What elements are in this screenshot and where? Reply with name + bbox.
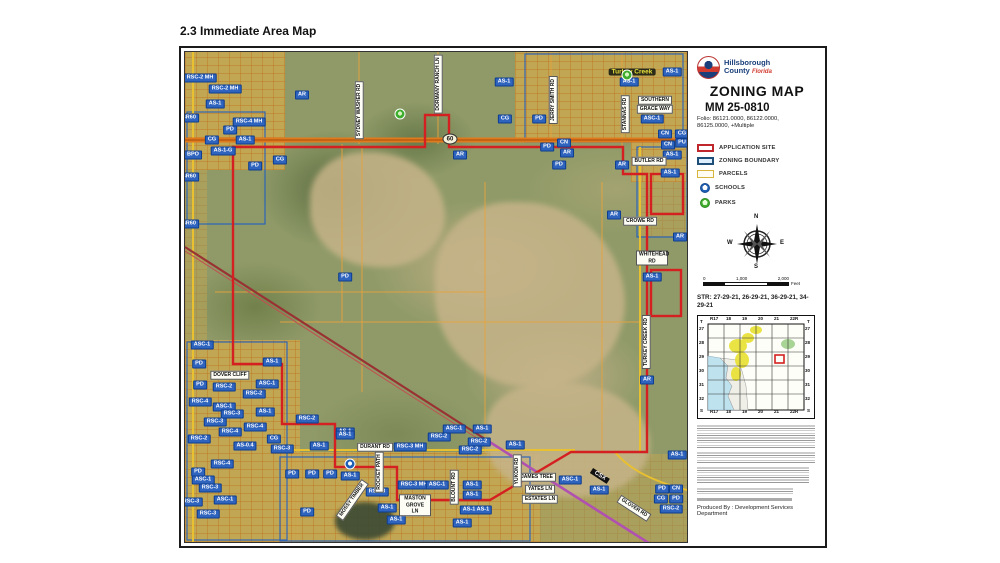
locator-row-label: 28	[699, 340, 704, 345]
zone-label: AS-1	[378, 504, 397, 513]
logo-org2: County	[724, 66, 750, 75]
case-number: MM 25-0810	[705, 102, 817, 114]
road-label-vertical: TURKEY CREEK RD	[642, 315, 651, 369]
legend-label: SCHOOLS	[715, 185, 745, 191]
locator-row-label: 30	[699, 368, 704, 373]
zone-label: RSC-3	[199, 484, 222, 493]
date-path-line	[697, 498, 792, 501]
compass-rose: N E S W	[729, 218, 785, 270]
produced-by: Produced By : Development Services Depar…	[697, 505, 815, 517]
zone-label: SR60	[184, 173, 199, 182]
scale-tick: 0	[703, 276, 706, 281]
map-title: ZONING MAP	[697, 83, 817, 99]
zone-label: RSC-2	[296, 415, 319, 424]
legend-item: PARKS	[697, 198, 817, 208]
zone-label: RSC-3	[204, 418, 227, 427]
locator-range-label: S	[700, 408, 703, 413]
scale-unit: Feet	[791, 281, 800, 286]
legend: APPLICATION SITEZONING BOUNDARYPARCELSSC…	[697, 144, 817, 208]
locator-col-label: 22R	[790, 409, 798, 414]
legend-item: SCHOOLS	[697, 183, 817, 193]
zone-label: PD	[540, 143, 554, 152]
zone-label: AS-1	[506, 441, 525, 450]
zone-label: AS-1	[668, 451, 687, 460]
logo-state: Florida	[752, 69, 772, 75]
county-logo-row: Hillsborough County Florida	[697, 56, 817, 79]
locator-row-label: 32	[805, 396, 810, 401]
school-icon	[700, 183, 710, 193]
zone-label: ASC-1	[426, 481, 449, 490]
road-label-vertical: ROCKET PATH	[375, 451, 384, 492]
road-label: CROWE RD	[623, 217, 657, 226]
locator-row-label: 29	[805, 354, 810, 359]
park-icon	[700, 198, 710, 208]
zone-label: RSC-2 MH	[184, 74, 216, 83]
zone-label: RSC-2	[660, 505, 683, 514]
locator-row-label: 28	[805, 340, 810, 345]
road-label-vertical: JERRY SMITH RD	[549, 76, 558, 124]
zone-label: ASC-1	[191, 341, 214, 350]
folio-numbers: Folio: 86121.0000, 86122.0000, 86125.000…	[697, 116, 809, 130]
locator-row-label: 27	[805, 326, 810, 331]
zone-label: AR	[453, 151, 467, 160]
report-page: 2.3 Immediate Area Map	[0, 0, 1000, 563]
legend-item: PARCELS	[697, 170, 817, 178]
locator-col-label: 22R	[790, 316, 798, 321]
zone-label: PD	[655, 485, 669, 494]
road-label-vertical: YUKON RD	[513, 455, 522, 488]
compass-n: N	[754, 214, 758, 220]
locator-col-label: 19	[742, 316, 747, 321]
zone-label: ASC-1	[256, 380, 279, 389]
zone-label: AR	[640, 376, 654, 385]
compass-e: E	[780, 240, 784, 246]
road-label-vertical: DORMANY RANCH LN	[434, 54, 443, 113]
zone-label: AS-1	[341, 472, 360, 481]
zone-label: PD	[532, 115, 546, 124]
zone-label: ASC-1	[214, 496, 237, 505]
zone-label: CG	[267, 435, 281, 444]
zone-label: PD	[248, 162, 262, 171]
zone-label: SR60	[184, 114, 199, 123]
zone-label: RSC-3 MH	[394, 443, 427, 452]
zone-label: RSC-3	[271, 445, 294, 454]
zone-label: AS-1	[206, 100, 225, 109]
locator-row-label: 27	[699, 326, 704, 331]
locator-col-label: 20	[758, 409, 763, 414]
zone-label: AS-1	[473, 425, 492, 434]
scale-bar: 01,0002,000 Feet	[699, 276, 815, 286]
zone-label: RSC-2 MH	[209, 85, 242, 94]
zone-label: BPO	[184, 151, 202, 160]
application-site-boundary	[233, 115, 683, 500]
zone-label: SR60	[184, 220, 199, 229]
zone-label: PD	[192, 360, 206, 369]
zone-label: RSC-2	[428, 433, 451, 442]
zone-label: CG	[205, 136, 219, 145]
zone-label: AS-1	[590, 486, 609, 495]
zone-label: AS-1	[463, 481, 482, 490]
road-label: ESTATES LN	[522, 495, 558, 504]
park-icon	[622, 70, 633, 81]
locator-map: R17R17181819192020212122R22R272728282929…	[697, 315, 815, 419]
zone-label: AS-1	[336, 431, 355, 440]
zone-label: ASC-1	[641, 115, 664, 124]
zone-label: PD	[223, 126, 237, 135]
legend-label: PARKS	[715, 200, 736, 206]
zone-label: CG	[675, 130, 688, 139]
road-label: DOVER CLIFF	[210, 371, 249, 380]
road-label: GRACE WAY	[637, 105, 673, 114]
map-sidebar: Hillsborough County Florida ZONING MAP M…	[690, 51, 824, 543]
locator-row-label: 30	[805, 368, 810, 373]
zone-label: AS-0.4	[233, 442, 256, 451]
zone-label: AS-1	[236, 136, 255, 145]
zone-label: RSC-2	[188, 435, 211, 444]
zone-label: AS-1	[663, 68, 682, 77]
zone-label: AR	[560, 149, 574, 158]
zone-label: AS-1	[387, 516, 406, 525]
compass-w: W	[727, 240, 733, 246]
school-icon	[345, 459, 356, 470]
zone-label: CG	[654, 495, 668, 504]
zone-label: AS-1 AS-1	[460, 506, 492, 515]
locator-range-label: S	[807, 408, 810, 413]
zone-label: CN	[658, 130, 672, 139]
road-label-vertical: STANNAS RD	[621, 95, 630, 133]
zone-label: AR	[673, 233, 687, 242]
zone-label: AR	[295, 91, 309, 100]
park-icon	[395, 109, 406, 120]
section-title: 2.3 Immediate Area Map	[180, 24, 316, 38]
zone-label: ASC-1	[559, 476, 582, 485]
zone-label: RSC-4	[244, 423, 267, 432]
zone-label: RSC-4	[211, 460, 234, 469]
zoning-aerial-map: RSC-2 MHRSC-2 MHAS-1RSC-4 MHPDCGAS-1AS-1…	[184, 51, 688, 543]
locator-col-label: 21	[774, 409, 779, 414]
zone-label: AS-1	[263, 358, 282, 367]
zone-label: RSC-3	[197, 510, 220, 519]
zone-label: RSC-4	[189, 398, 212, 407]
disclaimer-text: Produced By : Development Services Depar…	[697, 424, 815, 517]
zone-label: CN	[669, 485, 683, 494]
zone-label: AS-1	[463, 491, 482, 500]
route-shield: 60	[443, 134, 458, 145]
road-label: WHITEHEAD RD	[636, 251, 668, 266]
locator-row-label: 31	[699, 382, 704, 387]
locator-col-label: 19	[742, 409, 747, 414]
zone-label: PD	[193, 381, 207, 390]
zone-label: AR	[607, 211, 621, 220]
road-label: MASTON GROVE LN	[399, 494, 431, 516]
locator-col-label: 21	[774, 316, 779, 321]
locator-col-label: R17	[710, 409, 718, 414]
scale-tick: 2,000	[778, 276, 789, 281]
legend-swatch	[697, 170, 714, 178]
locator-col-label: 20	[758, 316, 763, 321]
zone-label: PD	[552, 161, 566, 170]
locator-row-label: 31	[805, 382, 810, 387]
zone-label: CG	[273, 156, 287, 165]
zone-label: AS-1	[453, 519, 472, 528]
zone-label: AS-1	[661, 169, 680, 178]
zone-label: CN	[661, 141, 675, 150]
str-reference: STR: 27-29-21, 26-29-21, 36-29-21, 34-29…	[697, 294, 815, 309]
zone-label: PD	[323, 470, 337, 479]
zone-label: AS-1	[256, 408, 275, 417]
legend-label: PARCELS	[719, 171, 748, 177]
zone-label: PD	[300, 508, 314, 517]
locator-col-label: 18	[726, 409, 731, 414]
road-label-vertical: BLOUNT RD	[450, 469, 459, 504]
compass-s: S	[754, 264, 758, 270]
county-seal-icon	[697, 56, 720, 79]
locator-col-label: R17	[710, 316, 718, 321]
zone-label: PD	[285, 470, 299, 479]
zone-label: CN	[557, 139, 571, 148]
zone-label: RSC-4	[219, 428, 242, 437]
locator-row-label: 32	[699, 396, 704, 401]
legend-label: ZONING BOUNDARY	[719, 158, 779, 164]
road-label: BUTLER RD	[632, 157, 667, 166]
legend-label: APPLICATION SITE	[719, 145, 776, 151]
zone-label: AS-1	[643, 273, 662, 282]
legend-swatch	[697, 144, 714, 152]
legend-swatch	[697, 157, 714, 165]
zone-label: RSC-4 MH	[233, 118, 266, 127]
road-label: YATES LN	[525, 485, 555, 494]
zone-label: CG	[498, 115, 512, 124]
zone-label: PU	[675, 139, 688, 148]
zone-label: AR	[615, 161, 629, 170]
zone-label: AS-1	[495, 78, 514, 87]
locator-township-label: T	[700, 319, 703, 324]
zone-label: PD	[669, 495, 683, 504]
zone-label: PD	[305, 470, 319, 479]
road-label-vertical: SYDNEY WASHER RD	[355, 81, 364, 139]
map-document-frame: RSC-2 MHRSC-2 MHAS-1RSC-4 MHPDCGAS-1AS-1…	[179, 46, 827, 548]
zone-label: RSC-2	[459, 446, 482, 455]
legend-item: APPLICATION SITE	[697, 144, 817, 152]
scale-tick: 1,000	[736, 276, 747, 281]
road-label: SOUTHERN	[638, 96, 672, 105]
legend-item: ZONING BOUNDARY	[697, 157, 817, 165]
zone-label: AS-1-G	[211, 147, 236, 156]
locator-col-label: 18	[726, 316, 731, 321]
zone-label: PD	[338, 273, 352, 282]
zone-label: AS-1	[310, 442, 329, 451]
zone-label: RSC-3	[184, 498, 202, 507]
locator-township-label: T	[807, 319, 810, 324]
road-label: DURANT RD	[357, 443, 393, 452]
zone-label: RSC-2	[243, 390, 266, 399]
road-label: JAMES TREE	[518, 473, 556, 482]
zone-label: RSC-2	[213, 383, 236, 392]
locator-row-label: 29	[699, 354, 704, 359]
